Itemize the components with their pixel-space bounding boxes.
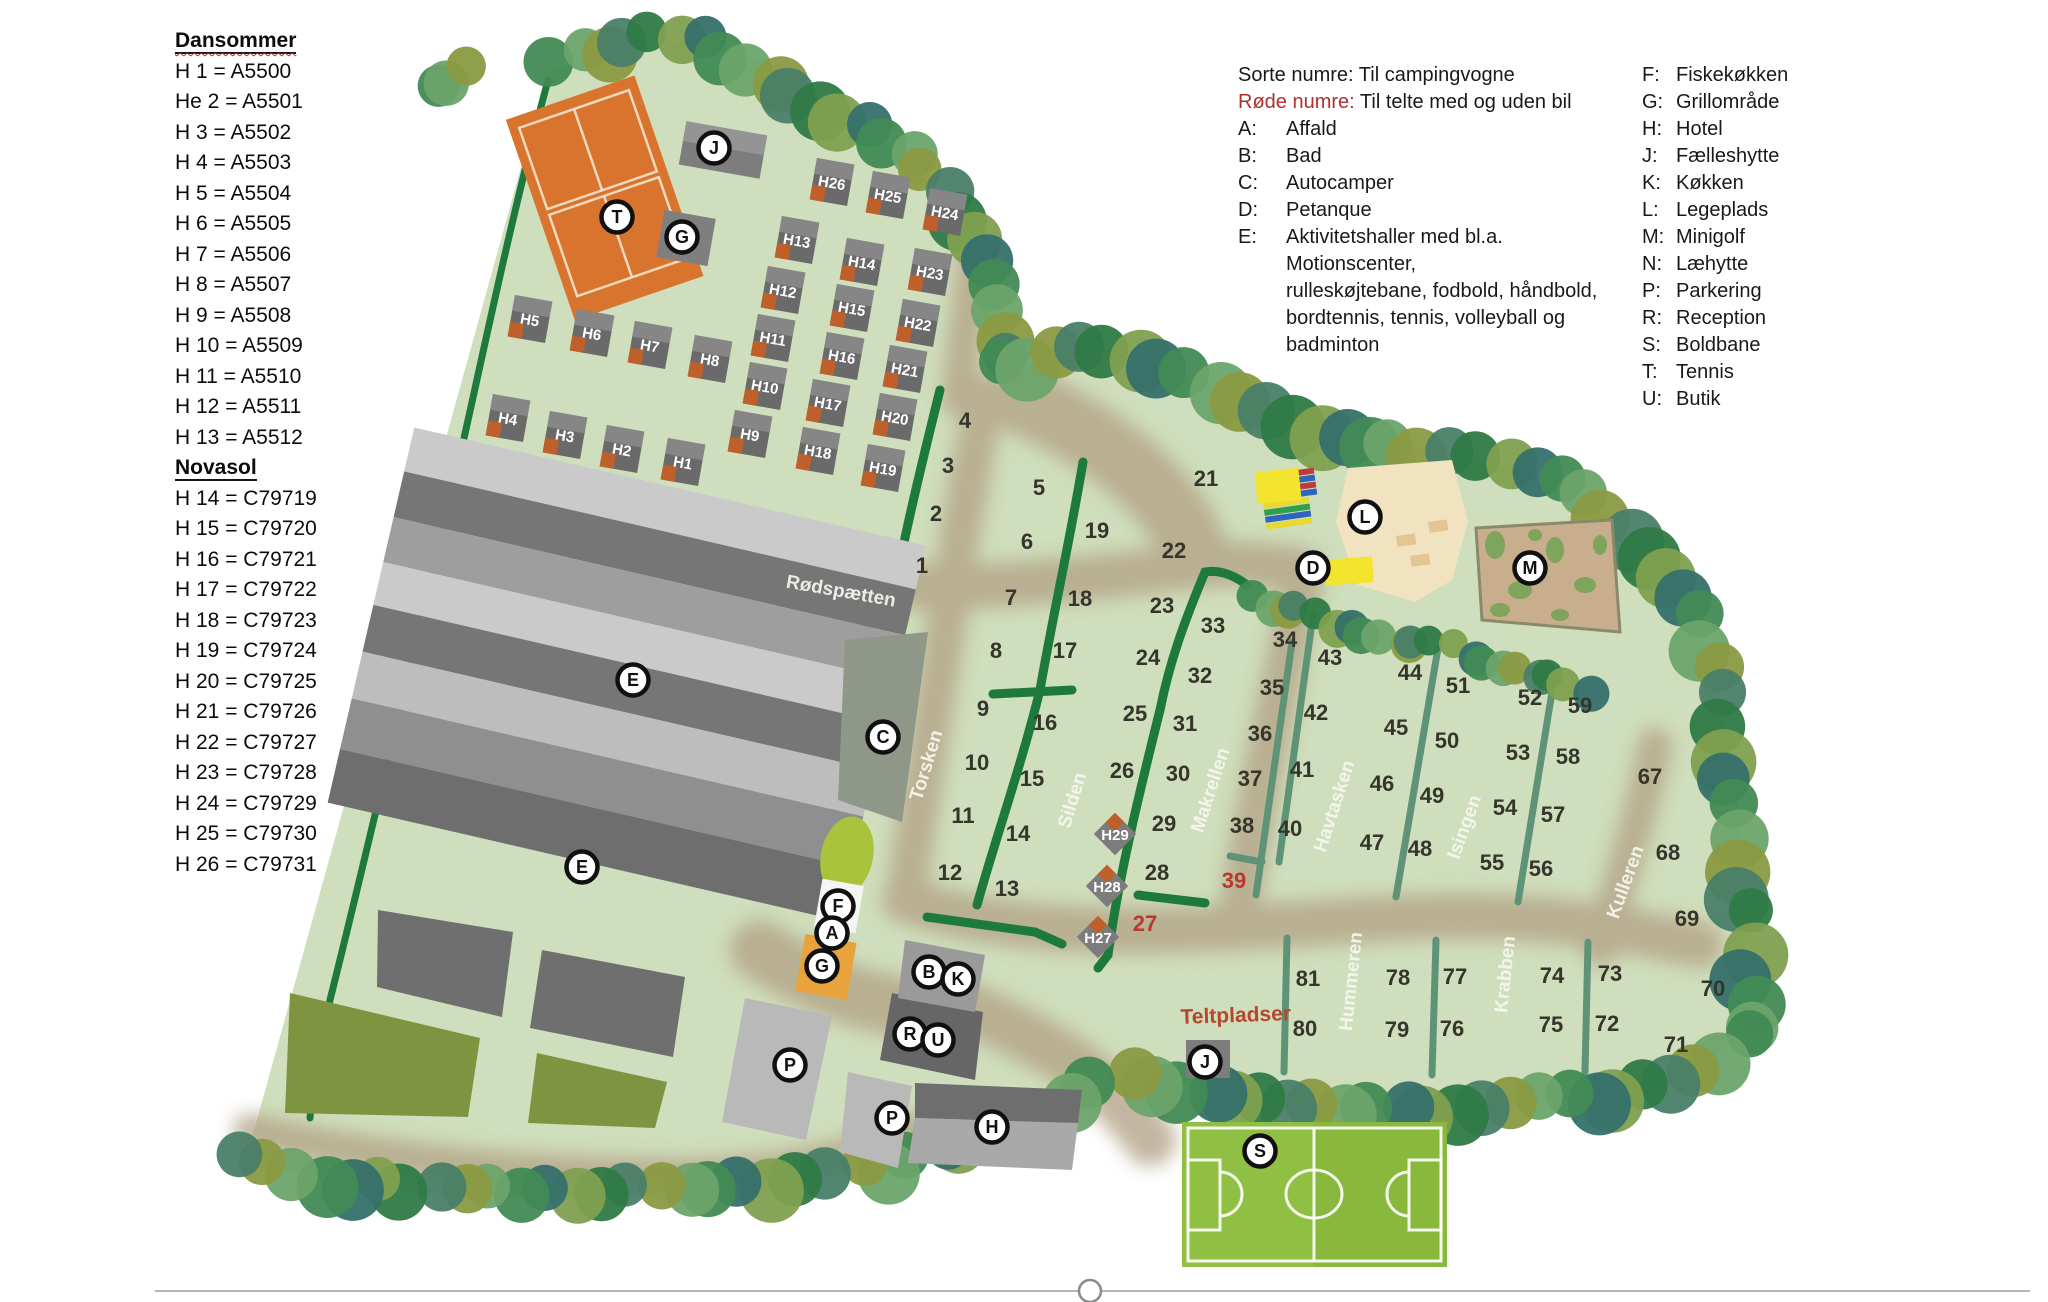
cabin-code-entry: H 26 = C79731 — [175, 850, 317, 881]
legend-item-C: C:Autocamper — [1238, 170, 1628, 197]
plot-number-36: 36 — [1248, 721, 1272, 746]
plot-number-39: 39 — [1222, 868, 1246, 893]
cabin-label: H28 — [1093, 879, 1121, 896]
facility-marker-boldbane: S — [1245, 1136, 1276, 1167]
legend-item-R: R:Reception — [1642, 305, 1842, 332]
plot-number-31: 31 — [1173, 711, 1197, 736]
plot-number-38: 38 — [1230, 813, 1254, 838]
legend-item-D: D:Petanque — [1238, 197, 1628, 224]
plot-number-51: 51 — [1446, 673, 1470, 698]
legend-item-E: E:Aktivitetshaller med bl.a. Motionscent… — [1238, 224, 1628, 278]
legend-item-F: F:Fiskekøkken — [1642, 62, 1842, 89]
facility-marker-grill-syd: G — [807, 951, 838, 982]
cabin-H11: H11 — [751, 314, 796, 362]
legend-red-numbers-note: Røde numre: Til telte med og uden bil — [1238, 89, 1628, 116]
facility-letter: P — [784, 1055, 796, 1075]
plot-number-18: 18 — [1068, 586, 1092, 611]
plot-number-71: 71 — [1664, 1032, 1688, 1057]
facility-marker-autocamper: C — [868, 722, 899, 753]
facility-letter: C — [877, 727, 890, 747]
plot-number-45: 45 — [1384, 715, 1408, 740]
cabin-H25: H25 — [866, 171, 911, 219]
legend-item-L: L:Legeplads — [1642, 197, 1842, 224]
minigolf-green — [1485, 531, 1505, 559]
plot-number-35: 35 — [1260, 675, 1284, 700]
cabin-label: H29 — [1101, 827, 1129, 844]
cabin-H18: H18 — [796, 427, 841, 475]
list-section-title: Novasol — [175, 453, 317, 484]
legend-column-2: F:FiskekøkkenG:GrillområdeH:HotelJ:Fælle… — [1642, 62, 1842, 413]
cabin-label: H9 — [739, 425, 761, 445]
football-field — [1182, 1122, 1447, 1267]
cabin-H22: H22 — [896, 299, 941, 347]
plot-number-29: 29 — [1152, 811, 1176, 836]
legend-item-continuation: rulleskøjtebane, fodbold, håndbold, — [1238, 278, 1628, 305]
plot-number-8: 8 — [990, 638, 1002, 663]
plot-number-17: 17 — [1053, 638, 1077, 663]
plot-number-33: 33 — [1201, 613, 1225, 638]
cabin-H1: H1 — [661, 438, 706, 486]
cabin-code-entry: H 24 = C79729 — [175, 789, 317, 820]
cabin-code-entry: H 16 = C79721 — [175, 545, 317, 576]
cabin-label: H7 — [639, 336, 661, 356]
legend-item-J: J:Fælleshytte — [1642, 143, 1842, 170]
cabin-H24: H24 — [923, 188, 968, 236]
legend-item-continuation: badminton — [1238, 332, 1628, 359]
cabin-H21: H21 — [883, 345, 928, 393]
plot-number-49: 49 — [1420, 783, 1444, 808]
facility-marker-reception: R — [895, 1019, 926, 1050]
minigolf-green — [1593, 535, 1607, 555]
cabin-label: H8 — [699, 350, 721, 370]
divider-handle[interactable] — [1079, 1280, 1101, 1302]
plot-number-67: 67 — [1638, 764, 1662, 789]
cabin-label: H2 — [611, 440, 633, 460]
plot-number-1: 1 — [916, 553, 928, 578]
cabin-H4: H4 — [486, 394, 531, 442]
plot-number-52: 52 — [1518, 685, 1542, 710]
plot-number-37: 37 — [1238, 766, 1262, 791]
plot-number-72: 72 — [1595, 1011, 1619, 1036]
list-section-title: Dansommer — [175, 26, 317, 57]
plot-number-80: 80 — [1293, 1016, 1317, 1041]
facility-marker-legeplads: L — [1350, 502, 1381, 533]
plot-number-3: 3 — [942, 453, 954, 478]
facility-letter: U — [932, 1030, 945, 1050]
facility-marker-butik: U — [923, 1025, 954, 1056]
minigolf-green — [1574, 577, 1596, 593]
plot-number-43: 43 — [1318, 645, 1342, 670]
cabin-label: H1 — [672, 453, 694, 473]
facility-marker-aktivitetshal-1: E — [618, 665, 649, 696]
facility-marker-faelleshytte: J — [699, 133, 730, 164]
plot-number-19: 19 — [1085, 518, 1109, 543]
teltpladser-label: Teltpladser — [1180, 1002, 1291, 1029]
legend-item-P: P:Parkering — [1642, 278, 1842, 305]
cabin-H16: H16 — [820, 332, 865, 380]
plot-number-28: 28 — [1145, 860, 1169, 885]
facility-letter: R — [904, 1024, 917, 1044]
facility-letter: A — [826, 923, 839, 943]
cabin-H20: H20 — [873, 393, 918, 441]
facility-letter: G — [675, 227, 689, 247]
cabin-H8: H8 — [688, 335, 733, 383]
legend-item-A: A:Affald — [1238, 116, 1628, 143]
plot-number-4: 4 — [959, 408, 972, 433]
cabin-code-entry: H 18 = C79723 — [175, 606, 317, 637]
plot-number-70: 70 — [1701, 976, 1725, 1001]
cabin-label: H27 — [1084, 930, 1112, 947]
cabin-H10: H10 — [743, 362, 788, 410]
cabin-H5: H5 — [508, 295, 553, 343]
cabin-code-entry: H 15 = C79720 — [175, 514, 317, 545]
cabin-H14: H14 — [840, 238, 885, 286]
plot-number-16: 16 — [1033, 710, 1057, 735]
cabin-code-entry: H 5 = A5504 — [175, 179, 317, 210]
cabin-H13: H13 — [775, 216, 820, 264]
cabin-code-entry: H 25 = C79730 — [175, 819, 317, 850]
plot-number-75: 75 — [1539, 1012, 1563, 1037]
cabin-code-entry: H 12 = A5511 — [175, 392, 317, 423]
cabin-code-entry: H 21 = C79726 — [175, 697, 317, 728]
plot-number-21: 21 — [1194, 466, 1218, 491]
plot-number-54: 54 — [1493, 795, 1518, 820]
cabin-H9: H9 — [728, 410, 773, 458]
cabin-code-entry: H 10 = A5509 — [175, 331, 317, 362]
tree — [217, 1132, 263, 1178]
cabin-code-entry: H 1 = A5500 — [175, 57, 317, 88]
hedge-line — [993, 690, 1072, 694]
cabin-H2: H2 — [600, 425, 645, 473]
facility-letter: J — [709, 138, 719, 158]
minigolf-green — [1551, 609, 1569, 621]
legend-item-M: M:Minigolf — [1642, 224, 1842, 251]
cabin-H17: H17 — [806, 379, 851, 427]
facility-marker-minigolf: M — [1515, 553, 1546, 584]
facility-marker-petanque: D — [1298, 553, 1329, 584]
facility-marker-affald: A — [817, 918, 848, 949]
minigolf-green — [1546, 537, 1564, 563]
cabin-code-list: DansommerH 1 = A5500He 2 = A5501H 3 = A5… — [175, 26, 317, 880]
facility-marker-kokken: K — [943, 964, 974, 995]
facility-letter: S — [1254, 1141, 1266, 1161]
cabin-code-entry: H 4 = A5503 — [175, 148, 317, 179]
plot-number-47: 47 — [1360, 830, 1384, 855]
legend-item-H: H:Hotel — [1642, 116, 1842, 143]
plot-number-78: 78 — [1386, 965, 1410, 990]
plot-number-74: 74 — [1540, 963, 1565, 988]
cabin-code-entry: H 19 = C79724 — [175, 636, 317, 667]
plot-number-77: 77 — [1443, 964, 1467, 989]
plot-number-55: 55 — [1480, 850, 1504, 875]
plot-number-59: 59 — [1568, 693, 1592, 718]
plot-divider-line — [1432, 940, 1436, 1075]
plot-number-68: 68 — [1656, 840, 1680, 865]
plot-number-24: 24 — [1136, 645, 1161, 670]
plot-number-25: 25 — [1123, 701, 1147, 726]
cabin-code-entry: H 6 = A5505 — [175, 209, 317, 240]
legend-column-1: Sorte numre: Til campingvogneRøde numre:… — [1238, 62, 1628, 359]
tree — [1361, 619, 1396, 654]
plot-number-23: 23 — [1150, 593, 1174, 618]
dirt-road — [905, 900, 1700, 945]
legend-item-G: G:Grillområde — [1642, 89, 1842, 116]
cabin-label: H5 — [519, 310, 541, 330]
cabin-H7: H7 — [628, 321, 673, 369]
plot-number-50: 50 — [1435, 728, 1459, 753]
plot-number-56: 56 — [1529, 856, 1553, 881]
facility-letter: B — [923, 962, 936, 982]
plot-number-32: 32 — [1188, 663, 1212, 688]
cabin-H26: H26 — [810, 158, 855, 206]
cabin-H3: H3 — [543, 411, 588, 459]
plot-number-7: 7 — [1005, 585, 1017, 610]
plot-number-81: 81 — [1296, 966, 1320, 991]
tree — [446, 46, 485, 85]
legend-black-numbers-note: Sorte numre: Til campingvogne — [1238, 62, 1628, 89]
plot-number-79: 79 — [1385, 1017, 1409, 1042]
plot-number-53: 53 — [1506, 740, 1530, 765]
plot-number-2: 2 — [930, 501, 942, 526]
plot-number-27: 27 — [1133, 911, 1157, 936]
tree — [1109, 1047, 1161, 1099]
legend-item-B: B:Bad — [1238, 143, 1628, 170]
cabin-code-entry: H 22 = C79727 — [175, 728, 317, 759]
cabin-code-entry: H 20 = C79725 — [175, 667, 317, 698]
yellow-pad — [1254, 468, 1301, 504]
cabin-H6: H6 — [570, 309, 615, 357]
plot-number-58: 58 — [1556, 744, 1580, 769]
cabin-code-entry: H 17 = C79722 — [175, 575, 317, 606]
cabin-code-entry: H 3 = A5502 — [175, 118, 317, 149]
cabin-code-entry: H 7 = A5506 — [175, 240, 317, 271]
facility-letter: T — [612, 207, 623, 227]
facility-marker-hotel: H — [977, 1112, 1008, 1143]
minigolf-green — [1528, 529, 1542, 541]
cabin-label: H6 — [581, 324, 603, 344]
plot-number-6: 6 — [1021, 529, 1033, 554]
campground-map-page: H1H2H3H4H5H6H7H8H9H10H11H12H13H14H15H16H… — [0, 0, 2048, 1302]
facility-marker-bad: B — [914, 957, 945, 988]
facility-marker-parkering-1: P — [775, 1050, 806, 1081]
facility-marker-parkering-2: P — [877, 1103, 908, 1134]
facility-marker-tennis: T — [602, 202, 633, 233]
legend-item-T: T:Tennis — [1642, 359, 1842, 386]
facility-marker-grill-nord: G — [667, 222, 698, 253]
plot-number-34: 34 — [1273, 627, 1298, 652]
plot-number-46: 46 — [1370, 771, 1394, 796]
cabin-code-entry: H 13 = A5512 — [175, 423, 317, 454]
facility-marker-aktivitetshal-2: E — [567, 852, 598, 883]
cabin-code-entry: H 8 = A5507 — [175, 270, 317, 301]
plot-number-41: 41 — [1290, 757, 1314, 782]
plot-number-13: 13 — [995, 876, 1019, 901]
facility-letter: D — [1307, 558, 1320, 578]
plot-number-11: 11 — [951, 803, 974, 828]
cabin-label: H3 — [554, 426, 576, 446]
legend-item-continuation: bordtennis, tennis, volleyball og — [1238, 305, 1628, 332]
facility-letter: M — [1523, 558, 1538, 578]
plot-number-14: 14 — [1006, 821, 1031, 846]
cabin-H15: H15 — [830, 284, 875, 332]
plot-number-10: 10 — [965, 750, 989, 775]
plot-number-5: 5 — [1033, 475, 1045, 500]
legend-item-K: K:Køkken — [1642, 170, 1842, 197]
plot-number-26: 26 — [1110, 758, 1134, 783]
facility-letter: H — [986, 1117, 999, 1137]
petanque-pad — [1324, 556, 1374, 585]
minigolf-green — [1490, 603, 1510, 617]
facility-letter: L — [1360, 507, 1371, 527]
plot-number-42: 42 — [1304, 700, 1328, 725]
cabin-H23: H23 — [908, 248, 953, 296]
cabin-label: H4 — [497, 409, 519, 429]
legend-item-U: U:Butik — [1642, 386, 1842, 413]
legend-item-S: S:Boldbane — [1642, 332, 1842, 359]
plot-number-57: 57 — [1541, 802, 1565, 827]
cabin-H12: H12 — [761, 266, 806, 314]
cabin-code-entry: H 9 = A5508 — [175, 301, 317, 332]
facility-letter: F — [833, 896, 844, 916]
tree — [1414, 626, 1444, 656]
plot-number-48: 48 — [1408, 836, 1432, 861]
facility-letter: J — [1200, 1052, 1210, 1072]
plot-number-76: 76 — [1440, 1016, 1464, 1041]
plot-number-22: 22 — [1162, 538, 1186, 563]
cabin-code-entry: H 14 = C79719 — [175, 484, 317, 515]
cabin-code-entry: He 2 = A5501 — [175, 87, 317, 118]
plot-number-30: 30 — [1166, 761, 1190, 786]
field-turf-half — [1314, 1122, 1447, 1267]
facility-letter: G — [815, 956, 829, 976]
legend-item-N: N:Læhytte — [1642, 251, 1842, 278]
plot-divider-line — [1585, 942, 1588, 1072]
plot-number-40: 40 — [1278, 816, 1302, 841]
facility-letter: K — [952, 969, 965, 989]
plot-number-12: 12 — [938, 860, 962, 885]
plot-number-73: 73 — [1598, 961, 1622, 986]
cabin-H19: H19 — [861, 444, 906, 492]
cabin-code-entry: H 23 = C79728 — [175, 758, 317, 789]
cabin-code-entry: H 11 = A5510 — [175, 362, 317, 393]
facility-letter: P — [886, 1108, 898, 1128]
plot-number-44: 44 — [1398, 660, 1423, 685]
plot-number-69: 69 — [1675, 906, 1699, 931]
facility-letter: E — [627, 670, 639, 690]
facility-marker-faelleshytte-telt: J — [1190, 1047, 1221, 1078]
plot-number-9: 9 — [977, 696, 989, 721]
facility-letter: E — [576, 857, 588, 877]
plot-number-15: 15 — [1020, 766, 1044, 791]
